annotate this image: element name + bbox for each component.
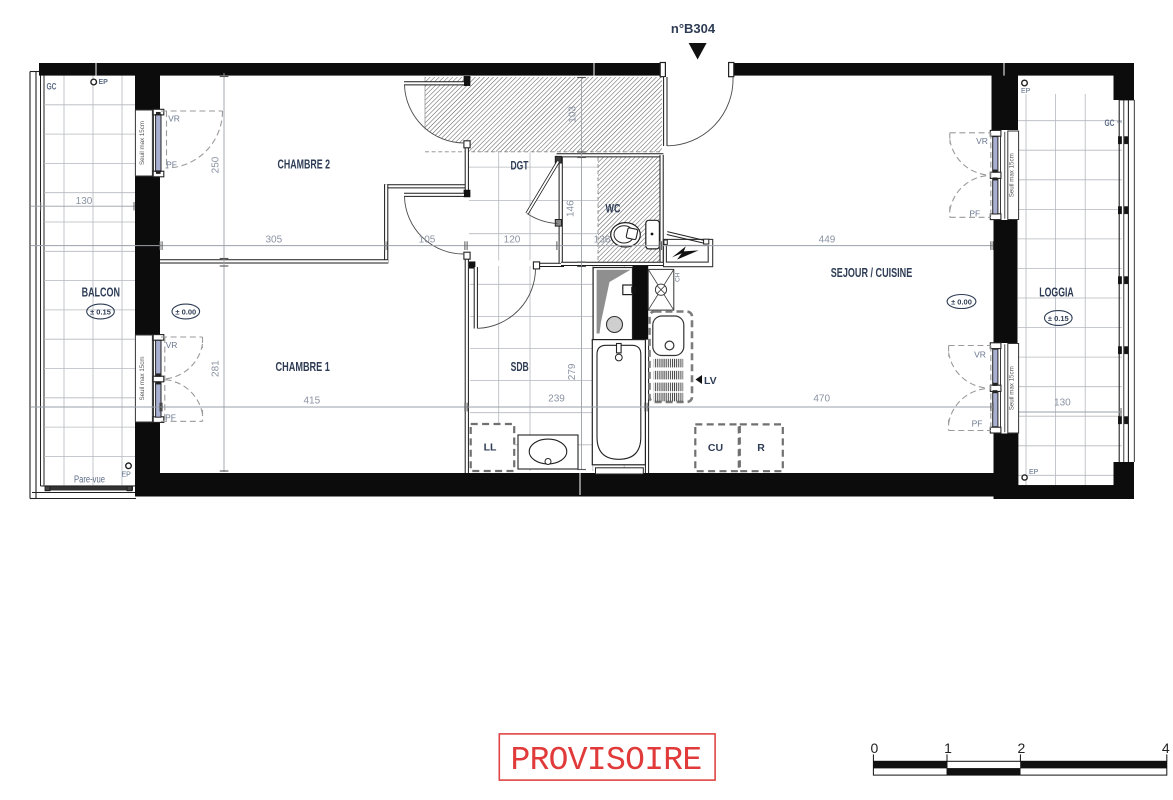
svg-text:0: 0	[871, 740, 879, 756]
svg-text:GC: GC	[1105, 118, 1115, 129]
svg-text:281: 281	[211, 360, 222, 377]
svg-text:WC: WC	[606, 204, 621, 216]
svg-text:± 0.00: ± 0.00	[175, 308, 196, 317]
svg-text:Seuil max 15cm: Seuil max 15cm	[139, 356, 146, 400]
svg-text:1: 1	[944, 740, 952, 756]
svg-text:EP: EP	[1021, 88, 1031, 95]
svg-text:GC: GC	[47, 81, 57, 92]
svg-text:± 0.15: ± 0.15	[1048, 314, 1069, 323]
svg-text:VR: VR	[166, 340, 178, 350]
svg-text:LV: LV	[704, 375, 717, 387]
svg-text:VR: VR	[168, 114, 180, 124]
svg-text:130: 130	[1054, 398, 1071, 409]
svg-text:VR: VR	[976, 136, 988, 146]
svg-text:136: 136	[594, 234, 611, 245]
svg-text:CHAMBRE 2: CHAMBRE 2	[278, 157, 331, 172]
svg-text:R: R	[757, 442, 765, 454]
svg-text:415: 415	[303, 396, 320, 407]
svg-text:LOGGIA: LOGGIA	[1039, 285, 1074, 300]
svg-text:279: 279	[567, 363, 578, 380]
svg-text:n°B304: n°B304	[671, 21, 716, 36]
svg-text:105: 105	[419, 234, 436, 245]
svg-text:± 0.15: ± 0.15	[90, 308, 111, 317]
svg-text:Seuil max 15cm: Seuil max 15cm	[1008, 153, 1015, 197]
svg-text:305: 305	[265, 234, 282, 245]
svg-text:± 0.00: ± 0.00	[951, 298, 972, 307]
svg-text:470: 470	[813, 394, 830, 405]
svg-text:VR: VR	[974, 350, 986, 360]
svg-text:SDB: SDB	[511, 359, 529, 374]
svg-text:PROVISOIRE: PROVISOIRE	[510, 742, 701, 779]
svg-text:CHAMBRE 1: CHAMBRE 1	[276, 359, 330, 374]
svg-text:EP: EP	[99, 79, 109, 86]
svg-text:449: 449	[819, 234, 836, 245]
svg-text:CU: CU	[708, 442, 723, 454]
svg-text:SEJOUR / CUISINE: SEJOUR / CUISINE	[831, 265, 913, 280]
svg-text:103: 103	[568, 106, 579, 123]
svg-text:Pare-vue: Pare-vue	[74, 474, 105, 485]
svg-text:130: 130	[76, 196, 93, 207]
svg-text:2: 2	[1018, 740, 1026, 756]
svg-text:Seuil max 15cm: Seuil max 15cm	[139, 121, 146, 165]
svg-text:EP: EP	[1029, 469, 1039, 476]
svg-text:LL: LL	[484, 442, 497, 454]
svg-text:146: 146	[565, 200, 576, 217]
svg-text:4: 4	[1162, 740, 1170, 756]
svg-text:EP: EP	[122, 472, 132, 479]
svg-text:CH: CH	[675, 272, 682, 282]
svg-text:DGT: DGT	[511, 160, 529, 172]
svg-text:BALCON: BALCON	[82, 285, 120, 300]
svg-text:239: 239	[548, 394, 565, 405]
svg-text:120: 120	[504, 234, 521, 245]
svg-text:Seuil max 15cm: Seuil max 15cm	[1008, 366, 1015, 410]
svg-text:250: 250	[211, 156, 222, 173]
svg-text:PF: PF	[972, 418, 983, 428]
